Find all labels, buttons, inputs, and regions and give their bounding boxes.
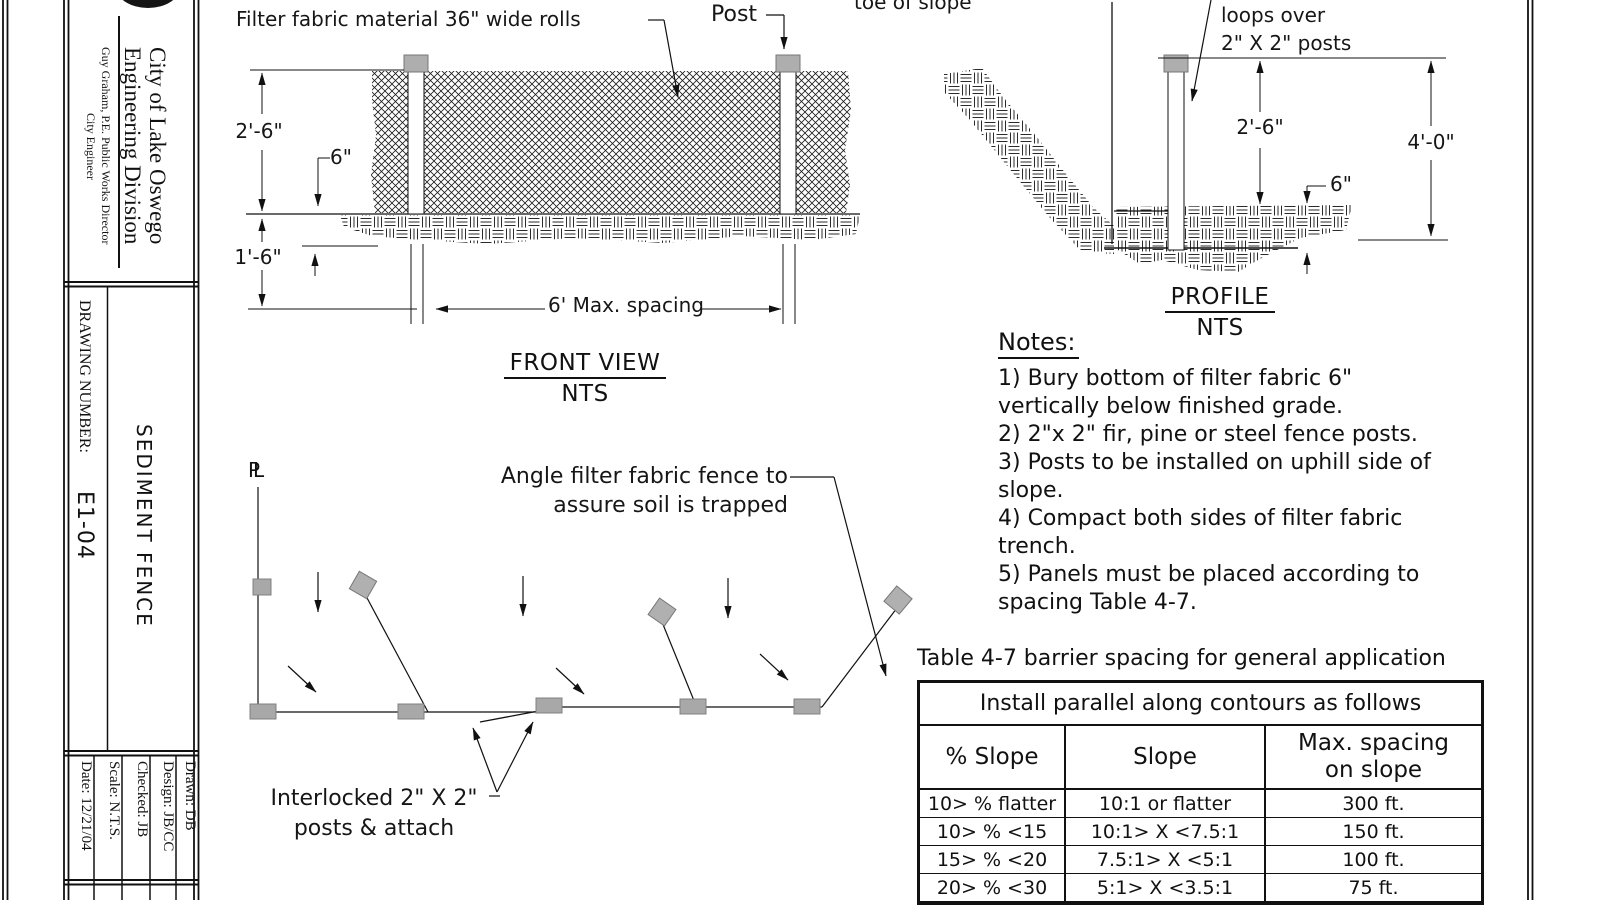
profile-post — [1168, 72, 1184, 250]
post-callout: Post — [711, 2, 757, 27]
plan-stake — [349, 571, 376, 598]
drawing-number-label: DRAWING NUMBER: — [76, 300, 93, 453]
post-cap-left — [404, 55, 428, 72]
brace-3 — [822, 596, 906, 707]
angle-callout-arrow — [834, 477, 886, 676]
spacing-table-header-row: % Slope Slope Max. spacing on slope — [920, 726, 1481, 790]
plan-stake — [648, 598, 676, 626]
angle-fence-callout-line1: Angle filter fabric fence to — [440, 462, 788, 491]
title-block-agency: City of Lake Oswego Engineering Division… — [69, 10, 194, 282]
cell-max-spacing: 75 ft. — [1266, 874, 1481, 901]
cell-slope: 10:1> X <7.5:1 — [1066, 818, 1266, 845]
ground-hatch — [340, 215, 860, 244]
brace-1 — [366, 596, 428, 712]
spacing-table: Table 4-7 barrier spacing for general ap… — [917, 646, 1484, 905]
drawing-number-block: DRAWING NUMBER: E1-04 — [72, 300, 101, 720]
note-line: 2) 2"x 2" fir, pine or steel fence posts… — [998, 421, 1431, 449]
spacing-table-grid: Install parallel along contours as follo… — [917, 680, 1484, 905]
note-line: 1) Bury bottom of filter fabric 6" — [998, 365, 1431, 393]
profile-view-linework — [944, 0, 1448, 274]
dim-fabric-lap: 6" — [330, 145, 352, 169]
angle-fence-callout: Angle filter fabric fence to assure soil… — [440, 462, 788, 520]
fabric-callout: Filter fabric material 36" wide rolls — [236, 7, 581, 31]
table-row: 10> % <15 10:1> X <7.5:1 150 ft. — [920, 818, 1481, 846]
note-line: 5) Panels must be placed according to — [998, 561, 1431, 589]
plan-post — [250, 704, 276, 719]
cell-pct-slope: 10> % flatter — [920, 790, 1066, 817]
cell-slope: 10:1 or flatter — [1066, 790, 1266, 817]
dim-profile-height: 2'-6" — [1228, 115, 1292, 139]
plan-post — [794, 699, 820, 714]
agency-seal-logo — [116, 0, 180, 8]
notes-heading: Notes: — [998, 328, 1079, 359]
fence-post-right — [780, 71, 796, 214]
cell-slope: 5:1> X <3.5:1 — [1066, 874, 1266, 901]
field-scale: Scale: N.T.S. — [96, 756, 122, 900]
angle-fence-callout-line2: assure soil is trapped — [440, 491, 788, 520]
field-checked: Checked: JB — [124, 756, 150, 900]
interlock-callout-line1: Interlocked 2" X 2" — [256, 784, 492, 814]
col-header-slope: Slope — [1066, 726, 1266, 788]
interlock-leader-2 — [497, 722, 533, 792]
cell-pct-slope: 15> % <20 — [920, 846, 1066, 873]
plan-view-linework — [250, 477, 912, 796]
interlock-callout-line2: posts & attach — [256, 814, 492, 844]
col-header-max-spacing: Max. spacing on slope — [1266, 726, 1481, 788]
toe-of-slope-callout: toe of slope — [854, 0, 972, 14]
plan-post — [398, 704, 424, 719]
field-drawn: Drawn: DB — [178, 756, 198, 900]
table-row: 15> % <20 7.5:1> X <5:1 100 ft. — [920, 846, 1481, 874]
loops-callout-arrow — [1192, 0, 1211, 101]
interlock-leader-1 — [473, 728, 497, 792]
slope-hatch — [944, 68, 1114, 254]
dim-post-spacing: 6' Max. spacing — [548, 293, 700, 317]
field-design: Design: JB/CC — [152, 756, 176, 900]
cell-slope: 7.5:1> X <5:1 — [1066, 846, 1266, 873]
interlock-callout: Interlocked 2" X 2" posts & attach — [256, 784, 492, 844]
plan-post — [253, 579, 271, 595]
plan-stake — [884, 586, 912, 614]
cell-max-spacing: 300 ft. — [1266, 790, 1481, 817]
cell-pct-slope: 10> % <15 — [920, 818, 1066, 845]
note-line: trench. — [998, 533, 1431, 561]
plan-post — [536, 698, 562, 713]
dim-profile-bury: 6" — [1330, 172, 1352, 196]
dim-bury-depth: 1'-6" — [226, 245, 290, 269]
filter-fabric-hatch — [371, 71, 851, 213]
post-cap-right — [776, 55, 800, 72]
agency-name-line1: City of Lake Oswego — [145, 10, 170, 282]
note-line: 3) Posts to be installed on uphill side … — [998, 449, 1431, 477]
agency-name-line2: Engineering Division — [120, 10, 145, 282]
dim-post-height: 4'-0" — [1398, 130, 1464, 154]
drawing-sheet: { "title_block": { "agency": ["City of L… — [0, 0, 1600, 900]
dim-fence-height: 2'-6" — [228, 119, 290, 143]
front-view-linework — [246, 15, 860, 324]
official-title: City Engineer — [83, 10, 98, 282]
note-line: slope. — [998, 477, 1431, 505]
loops-callout-line2: 2" X 2" posts — [1221, 29, 1351, 57]
note-line: vertically below finished grade. — [998, 393, 1431, 421]
flow-arrow — [288, 666, 316, 692]
note-line: spacing Table 4-7. — [998, 589, 1431, 617]
sheet-title: SEDIMENT FENCE — [132, 424, 156, 628]
spacing-table-subheader: Install parallel along contours as follo… — [920, 683, 1481, 726]
plan-post — [680, 699, 706, 714]
cell-pct-slope: 20> % <30 — [920, 874, 1066, 901]
flow-arrow — [760, 654, 788, 680]
loops-callout: loops over 2" X 2" posts — [1221, 1, 1351, 57]
cell-max-spacing: 150 ft. — [1266, 818, 1481, 845]
property-line-symbol: PL — [248, 458, 257, 482]
brace-2 — [662, 622, 697, 708]
front-view-title: FRONT VIEW — [504, 350, 667, 379]
spacing-table-title: Table 4-7 barrier spacing for general ap… — [917, 646, 1484, 671]
fence-post-left — [408, 71, 424, 214]
front-view-label: FRONT VIEW NTS — [495, 350, 675, 407]
field-date: Date: 12/21/04 — [66, 756, 94, 900]
profile-view-title: PROFILE — [1165, 284, 1276, 313]
note-line: 4) Compact both sides of filter fabric — [998, 505, 1431, 533]
front-view-scale: NTS — [495, 381, 675, 407]
flow-arrow — [556, 668, 584, 694]
col-header-pct-slope: % Slope — [920, 726, 1066, 788]
fence-panel-b — [480, 707, 822, 722]
table-row: 20> % <30 5:1> X <3.5:1 75 ft. — [920, 874, 1481, 902]
notes-block: Notes: 1) Bury bottom of filter fabric 6… — [998, 328, 1431, 617]
official-name: Guy Graham, P.E. Public Works Director — [98, 10, 113, 282]
trench-hatch — [1116, 205, 1352, 272]
loops-callout-line1: loops over — [1221, 1, 1351, 29]
drawing-number: E1-04 — [72, 491, 97, 560]
table-row: 10> % flatter 10:1 or flatter 300 ft. — [920, 790, 1481, 818]
cell-max-spacing: 100 ft. — [1266, 846, 1481, 873]
